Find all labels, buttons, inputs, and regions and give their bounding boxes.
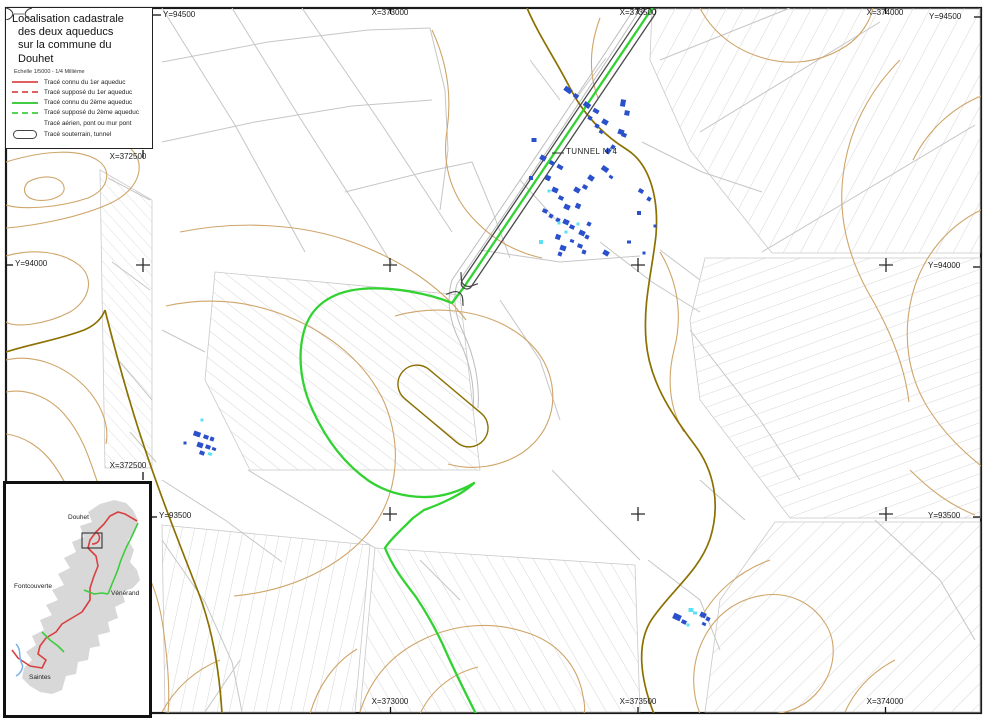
legend-item-known-2nd: Tracé connu du 2ème aqueduc (12, 99, 148, 106)
legend-item-supposed-2nd: Tracé supposé du 2ème aqueduc (12, 109, 148, 116)
map-sheet: Y=94500 X=373000 X=373500 X=374000 Y=945… (0, 0, 987, 720)
legend-label: Tracé souterrain, tunnel (44, 131, 111, 138)
inset-label-fontcouverte: Fontcouverte (14, 583, 52, 590)
coord-label-x373500-top: X=373500 (616, 8, 660, 17)
tunnel-symbol-icon (12, 130, 38, 139)
red-dashed-line-icon (12, 91, 38, 93)
red-solid-line-icon (12, 81, 38, 83)
scale-note: Echelle 1/5000 - 1/4 Millième (14, 69, 148, 75)
inset-label-douhet: Douhet (68, 514, 89, 521)
coord-label-x373000-top: X=373000 (368, 8, 412, 17)
legend-box: Localisation cadastrale des deux aqueduc… (5, 7, 153, 149)
legend-item-known-1st: Tracé connu du 1er aqueduc (12, 79, 148, 86)
coord-label-y94500-right: Y=94500 (929, 12, 961, 21)
green-dashed-line-icon (12, 112, 38, 114)
coord-label-x373500-bottom: X=373500 (616, 697, 660, 706)
coord-label-x372500-upper: X=372500 (106, 152, 150, 161)
legend-item-tunnel: Tracé souterrain, tunnel (12, 130, 148, 139)
green-solid-line-icon (12, 102, 38, 104)
coord-label-y94500-left: Y=94500 (163, 10, 195, 19)
legend-label: Tracé aérien, pont ou mur pont (44, 120, 132, 127)
map-title: Localisation cadastrale des deux aqueduc… (12, 13, 148, 66)
title-line-2: des deux aqueducs (12, 26, 148, 39)
coord-label-y94000-right: Y=94000 (928, 261, 960, 270)
legend-label: Tracé connu du 2ème aqueduc (44, 99, 132, 106)
coord-label-x372500-lower: X=372500 (106, 461, 150, 470)
legend-item-supposed-1st: Tracé supposé du 1er aqueduc (12, 89, 148, 96)
legend-item-aerial: Tracé aérien, pont ou mur pont (12, 120, 148, 127)
title-line-3: sur la commune du (12, 39, 148, 52)
tunnel-label: TUNNEL N°4 (566, 147, 617, 156)
legend-label: Tracé supposé du 2ème aqueduc (44, 109, 139, 116)
legend-label: Tracé supposé du 1er aqueduc (44, 89, 132, 96)
inset-commune-blob (22, 500, 140, 694)
coord-label-y93500-left: Y=93500 (159, 511, 191, 520)
inset-label-venerand: Vénérand (111, 590, 139, 597)
coord-label-y94000-left: Y=94000 (15, 259, 47, 268)
coord-label-x373000-bottom: X=373000 (368, 697, 412, 706)
legend-label: Tracé connu du 1er aqueduc (44, 79, 125, 86)
title-line-1: Localisation cadastrale (12, 13, 148, 26)
inset-label-saintes: Saintes (29, 674, 51, 681)
coord-label-y93500-right: Y=93500 (928, 511, 960, 520)
title-line-4: Douhet (12, 53, 148, 66)
coord-label-x374000-bottom: X=374000 (863, 697, 907, 706)
coord-label-x374000-top: X=374000 (863, 8, 907, 17)
